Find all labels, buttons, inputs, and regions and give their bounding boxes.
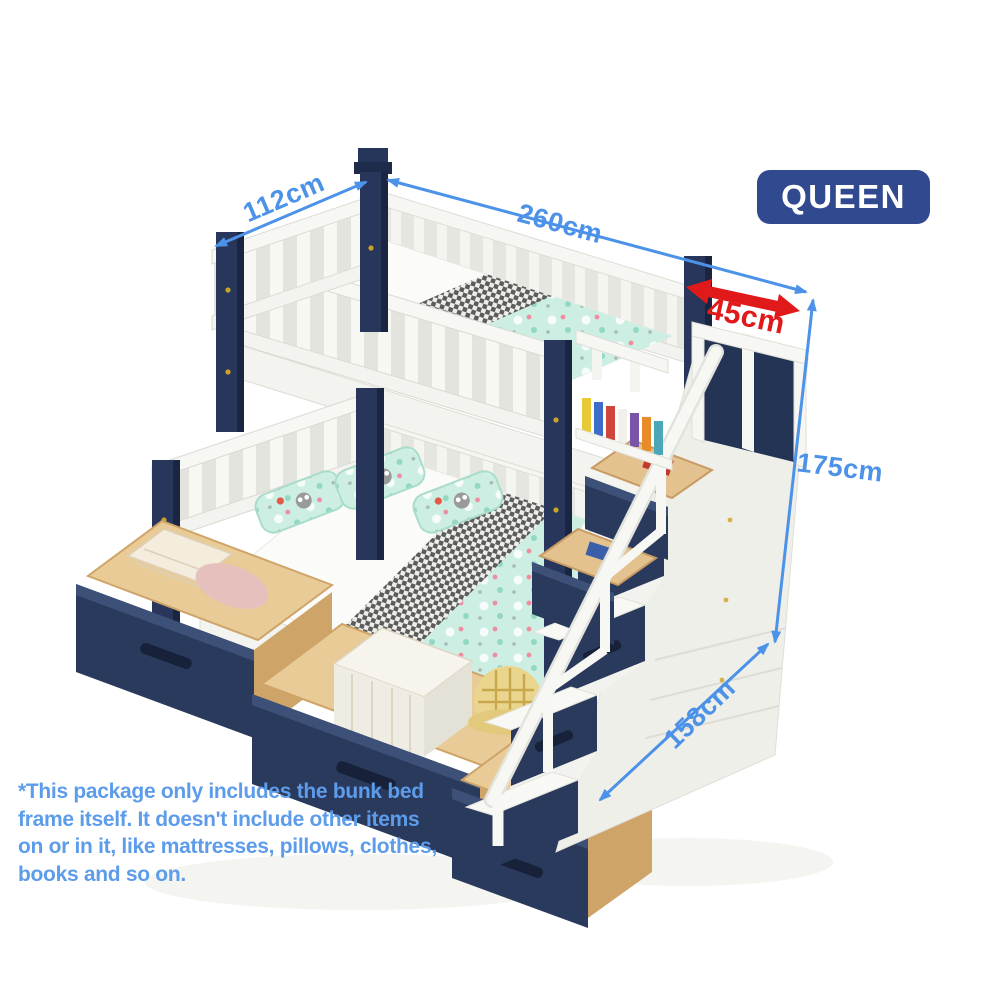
disclaimer-line-3: on or in it, like mattresses, pillows, c… xyxy=(18,833,438,861)
size-badge: QUEEN xyxy=(757,170,930,224)
disclaimer-line-1: *This package only includes the bunk bed xyxy=(18,778,438,806)
disclaimer-line-2: frame itself. It doesn't include other i… xyxy=(18,806,438,834)
product-dimension-diagram: 112cm 260cm 45cm 175cm 158cm QUEEN *This… xyxy=(0,0,1000,1000)
disclaimer-line-4: books and so on. xyxy=(18,861,438,889)
package-disclaimer: *This package only includes the bunk bed… xyxy=(18,778,438,889)
